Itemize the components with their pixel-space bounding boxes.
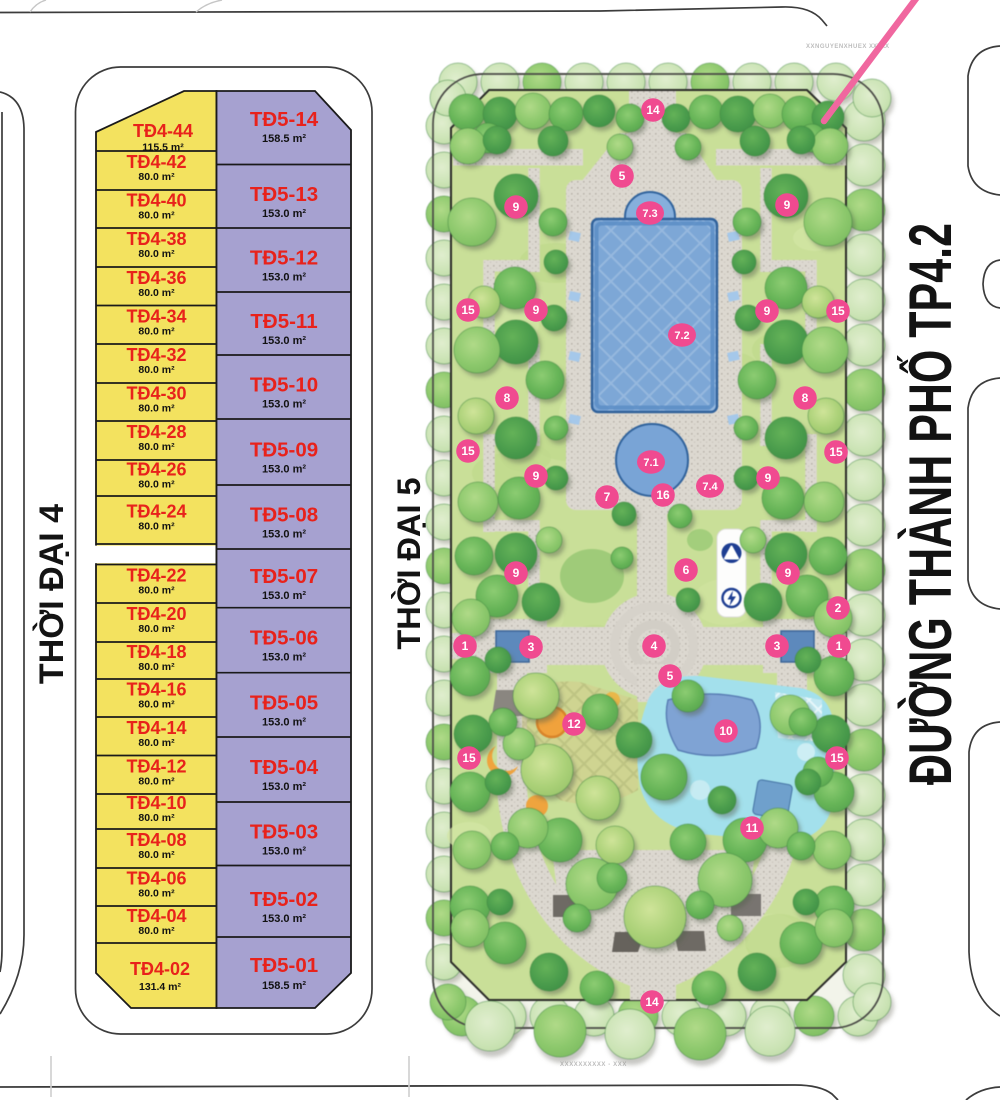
svg-text:THỜI ĐẠI 5: THỜI ĐẠI 5: [390, 477, 427, 649]
svg-text:12: 12: [567, 717, 581, 731]
svg-text:TĐ4-06: TĐ4-06: [126, 869, 186, 889]
svg-text:TĐ5-14: TĐ5-14: [250, 108, 319, 131]
svg-text:8: 8: [504, 391, 511, 405]
svg-text:9: 9: [513, 200, 520, 214]
svg-text:TĐ4-18: TĐ4-18: [126, 642, 186, 662]
svg-text:80.0 m²: 80.0 m²: [138, 775, 175, 787]
svg-text:80.0 m²: 80.0 m²: [138, 325, 175, 337]
svg-text:TĐ4-14: TĐ4-14: [126, 718, 186, 738]
svg-text:80.0 m²: 80.0 m²: [138, 888, 175, 900]
svg-text:7.1: 7.1: [643, 457, 658, 469]
svg-text:TĐ4-12: TĐ4-12: [126, 756, 186, 776]
svg-text:1: 1: [836, 639, 843, 653]
svg-text:80.0 m²: 80.0 m²: [138, 849, 175, 861]
svg-text:153.0 m²: 153.0 m²: [262, 464, 306, 476]
svg-text:7.4: 7.4: [702, 481, 718, 493]
svg-text:9: 9: [764, 304, 771, 318]
svg-text:9: 9: [784, 198, 791, 212]
svg-text:15: 15: [461, 303, 475, 317]
svg-text:16: 16: [656, 488, 670, 502]
svg-text:15: 15: [830, 751, 844, 765]
svg-text:131.4 m²: 131.4 m²: [139, 981, 182, 993]
svg-text:XXNGUYENXHUEX: XXNGUYENXHUEX: [806, 44, 867, 50]
svg-text:15: 15: [461, 444, 475, 458]
svg-text:TĐ4-30: TĐ4-30: [126, 384, 186, 404]
svg-text:80.0 m²: 80.0 m²: [138, 584, 175, 596]
svg-text:80.0 m²: 80.0 m²: [138, 403, 175, 415]
svg-text:153.0 m²: 153.0 m²: [262, 845, 306, 857]
svg-text:TĐ5-08: TĐ5-08: [250, 504, 318, 527]
svg-text:THỜI ĐẠI 4: THỜI ĐẠI 4: [33, 504, 71, 684]
svg-text:3: 3: [774, 639, 781, 653]
svg-text:15: 15: [462, 751, 476, 765]
svg-text:6: 6: [683, 563, 690, 577]
svg-text:80.0 m²: 80.0 m²: [138, 661, 175, 673]
svg-text:TĐ5-04: TĐ5-04: [250, 756, 319, 779]
svg-text:80.0 m²: 80.0 m²: [138, 364, 175, 376]
svg-text:11: 11: [746, 821, 759, 835]
svg-text:4: 4: [651, 639, 658, 653]
svg-text:153.0 m²: 153.0 m²: [262, 272, 306, 284]
svg-text:153.0 m²: 153.0 m²: [262, 529, 306, 541]
svg-text:TĐ5-01: TĐ5-01: [250, 954, 318, 977]
svg-text:5: 5: [667, 669, 674, 683]
svg-text:15: 15: [829, 445, 843, 459]
svg-text:9: 9: [533, 303, 540, 317]
svg-text:9: 9: [765, 471, 772, 485]
svg-text:80.0 m²: 80.0 m²: [138, 699, 175, 711]
svg-text:TĐ5-11: TĐ5-11: [250, 310, 317, 333]
svg-text:8: 8: [802, 391, 809, 405]
svg-text:TĐ5-13: TĐ5-13: [250, 183, 318, 206]
svg-text:TĐ5-05: TĐ5-05: [250, 691, 318, 714]
svg-text:TĐ4-32: TĐ4-32: [126, 345, 186, 365]
svg-text:TĐ4-04: TĐ4-04: [126, 906, 186, 926]
svg-text:80.0 m²: 80.0 m²: [138, 925, 175, 937]
svg-text:TĐ4-34: TĐ4-34: [126, 306, 186, 326]
svg-text:158.5 m²: 158.5 m²: [262, 980, 306, 992]
svg-text:TĐ5-07: TĐ5-07: [250, 565, 318, 588]
svg-text:TĐ4-36: TĐ4-36: [126, 268, 186, 288]
svg-text:14: 14: [646, 103, 660, 117]
svg-text:80.0 m²: 80.0 m²: [138, 812, 175, 824]
svg-text:TĐ4-26: TĐ4-26: [126, 460, 186, 480]
svg-text:TĐ4-02: TĐ4-02: [130, 959, 190, 979]
svg-text:158.5 m²: 158.5 m²: [262, 133, 306, 145]
svg-text:80.0 m²: 80.0 m²: [138, 171, 175, 183]
svg-text:TĐ5-10: TĐ5-10: [250, 374, 318, 397]
svg-text:153.0 m²: 153.0 m²: [262, 781, 306, 793]
svg-text:153.0 m²: 153.0 m²: [262, 335, 306, 347]
svg-text:80.0 m²: 80.0 m²: [138, 737, 175, 749]
svg-text:XXXXXXXXXX - XXX: XXXXXXXXXX - XXX: [560, 1062, 627, 1068]
svg-text:80.0 m²: 80.0 m²: [138, 479, 175, 491]
svg-text:9: 9: [785, 566, 792, 580]
svg-text:153.0 m²: 153.0 m²: [262, 590, 306, 602]
svg-text:5: 5: [619, 169, 626, 183]
svg-text:TĐ4-16: TĐ4-16: [126, 680, 186, 700]
svg-text:TĐ5-02: TĐ5-02: [250, 888, 318, 911]
svg-text:TĐ4-28: TĐ4-28: [126, 422, 186, 442]
svg-text:TĐ5-12: TĐ5-12: [250, 247, 318, 270]
svg-text:TĐ5-06: TĐ5-06: [250, 627, 318, 650]
svg-text:TĐ5-03: TĐ5-03: [250, 820, 318, 843]
svg-text:80.0 m²: 80.0 m²: [138, 623, 175, 635]
svg-text:80.0 m²: 80.0 m²: [138, 287, 175, 299]
svg-text:1: 1: [462, 639, 469, 653]
svg-text:7.2: 7.2: [674, 330, 689, 342]
svg-text:153.0 m²: 153.0 m²: [262, 208, 306, 220]
svg-text:3: 3: [528, 640, 535, 654]
svg-text:80.0 m²: 80.0 m²: [138, 210, 175, 222]
svg-text:10: 10: [719, 724, 733, 738]
svg-text:TĐ4-22: TĐ4-22: [126, 565, 186, 585]
svg-text:TĐ4-40: TĐ4-40: [126, 191, 186, 211]
svg-text:153.0 m²: 153.0 m²: [262, 652, 306, 664]
svg-text:TĐ4-20: TĐ4-20: [126, 604, 186, 624]
svg-text:80.0 m²: 80.0 m²: [138, 441, 175, 453]
svg-text:7.3: 7.3: [642, 208, 657, 220]
svg-text:80.0 m²: 80.0 m²: [138, 248, 175, 260]
svg-text:153.0 m²: 153.0 m²: [262, 913, 306, 925]
svg-text:TĐ5-09: TĐ5-09: [250, 439, 318, 462]
svg-text:9: 9: [513, 566, 520, 580]
svg-text:TĐ4-10: TĐ4-10: [126, 793, 186, 813]
svg-text:14: 14: [645, 995, 659, 1009]
svg-text:9: 9: [533, 469, 540, 483]
svg-text:TĐ4-08: TĐ4-08: [126, 830, 186, 850]
svg-text:TĐ4-44: TĐ4-44: [133, 121, 193, 141]
svg-text:ĐƯỜNG THÀNH PHỐ TP4.2: ĐƯỜNG THÀNH PHỐ TP4.2: [897, 223, 964, 785]
svg-text:15: 15: [831, 304, 845, 318]
svg-text:153.0 m²: 153.0 m²: [262, 399, 306, 411]
svg-text:7: 7: [604, 490, 611, 504]
svg-text:153.0 m²: 153.0 m²: [262, 716, 306, 728]
svg-text:2: 2: [835, 601, 842, 615]
svg-text:TĐ4-38: TĐ4-38: [126, 229, 186, 249]
svg-text:80.0 m²: 80.0 m²: [138, 521, 175, 533]
svg-text:TĐ4-24: TĐ4-24: [126, 502, 186, 522]
svg-text:TĐ4-42: TĐ4-42: [126, 152, 186, 172]
